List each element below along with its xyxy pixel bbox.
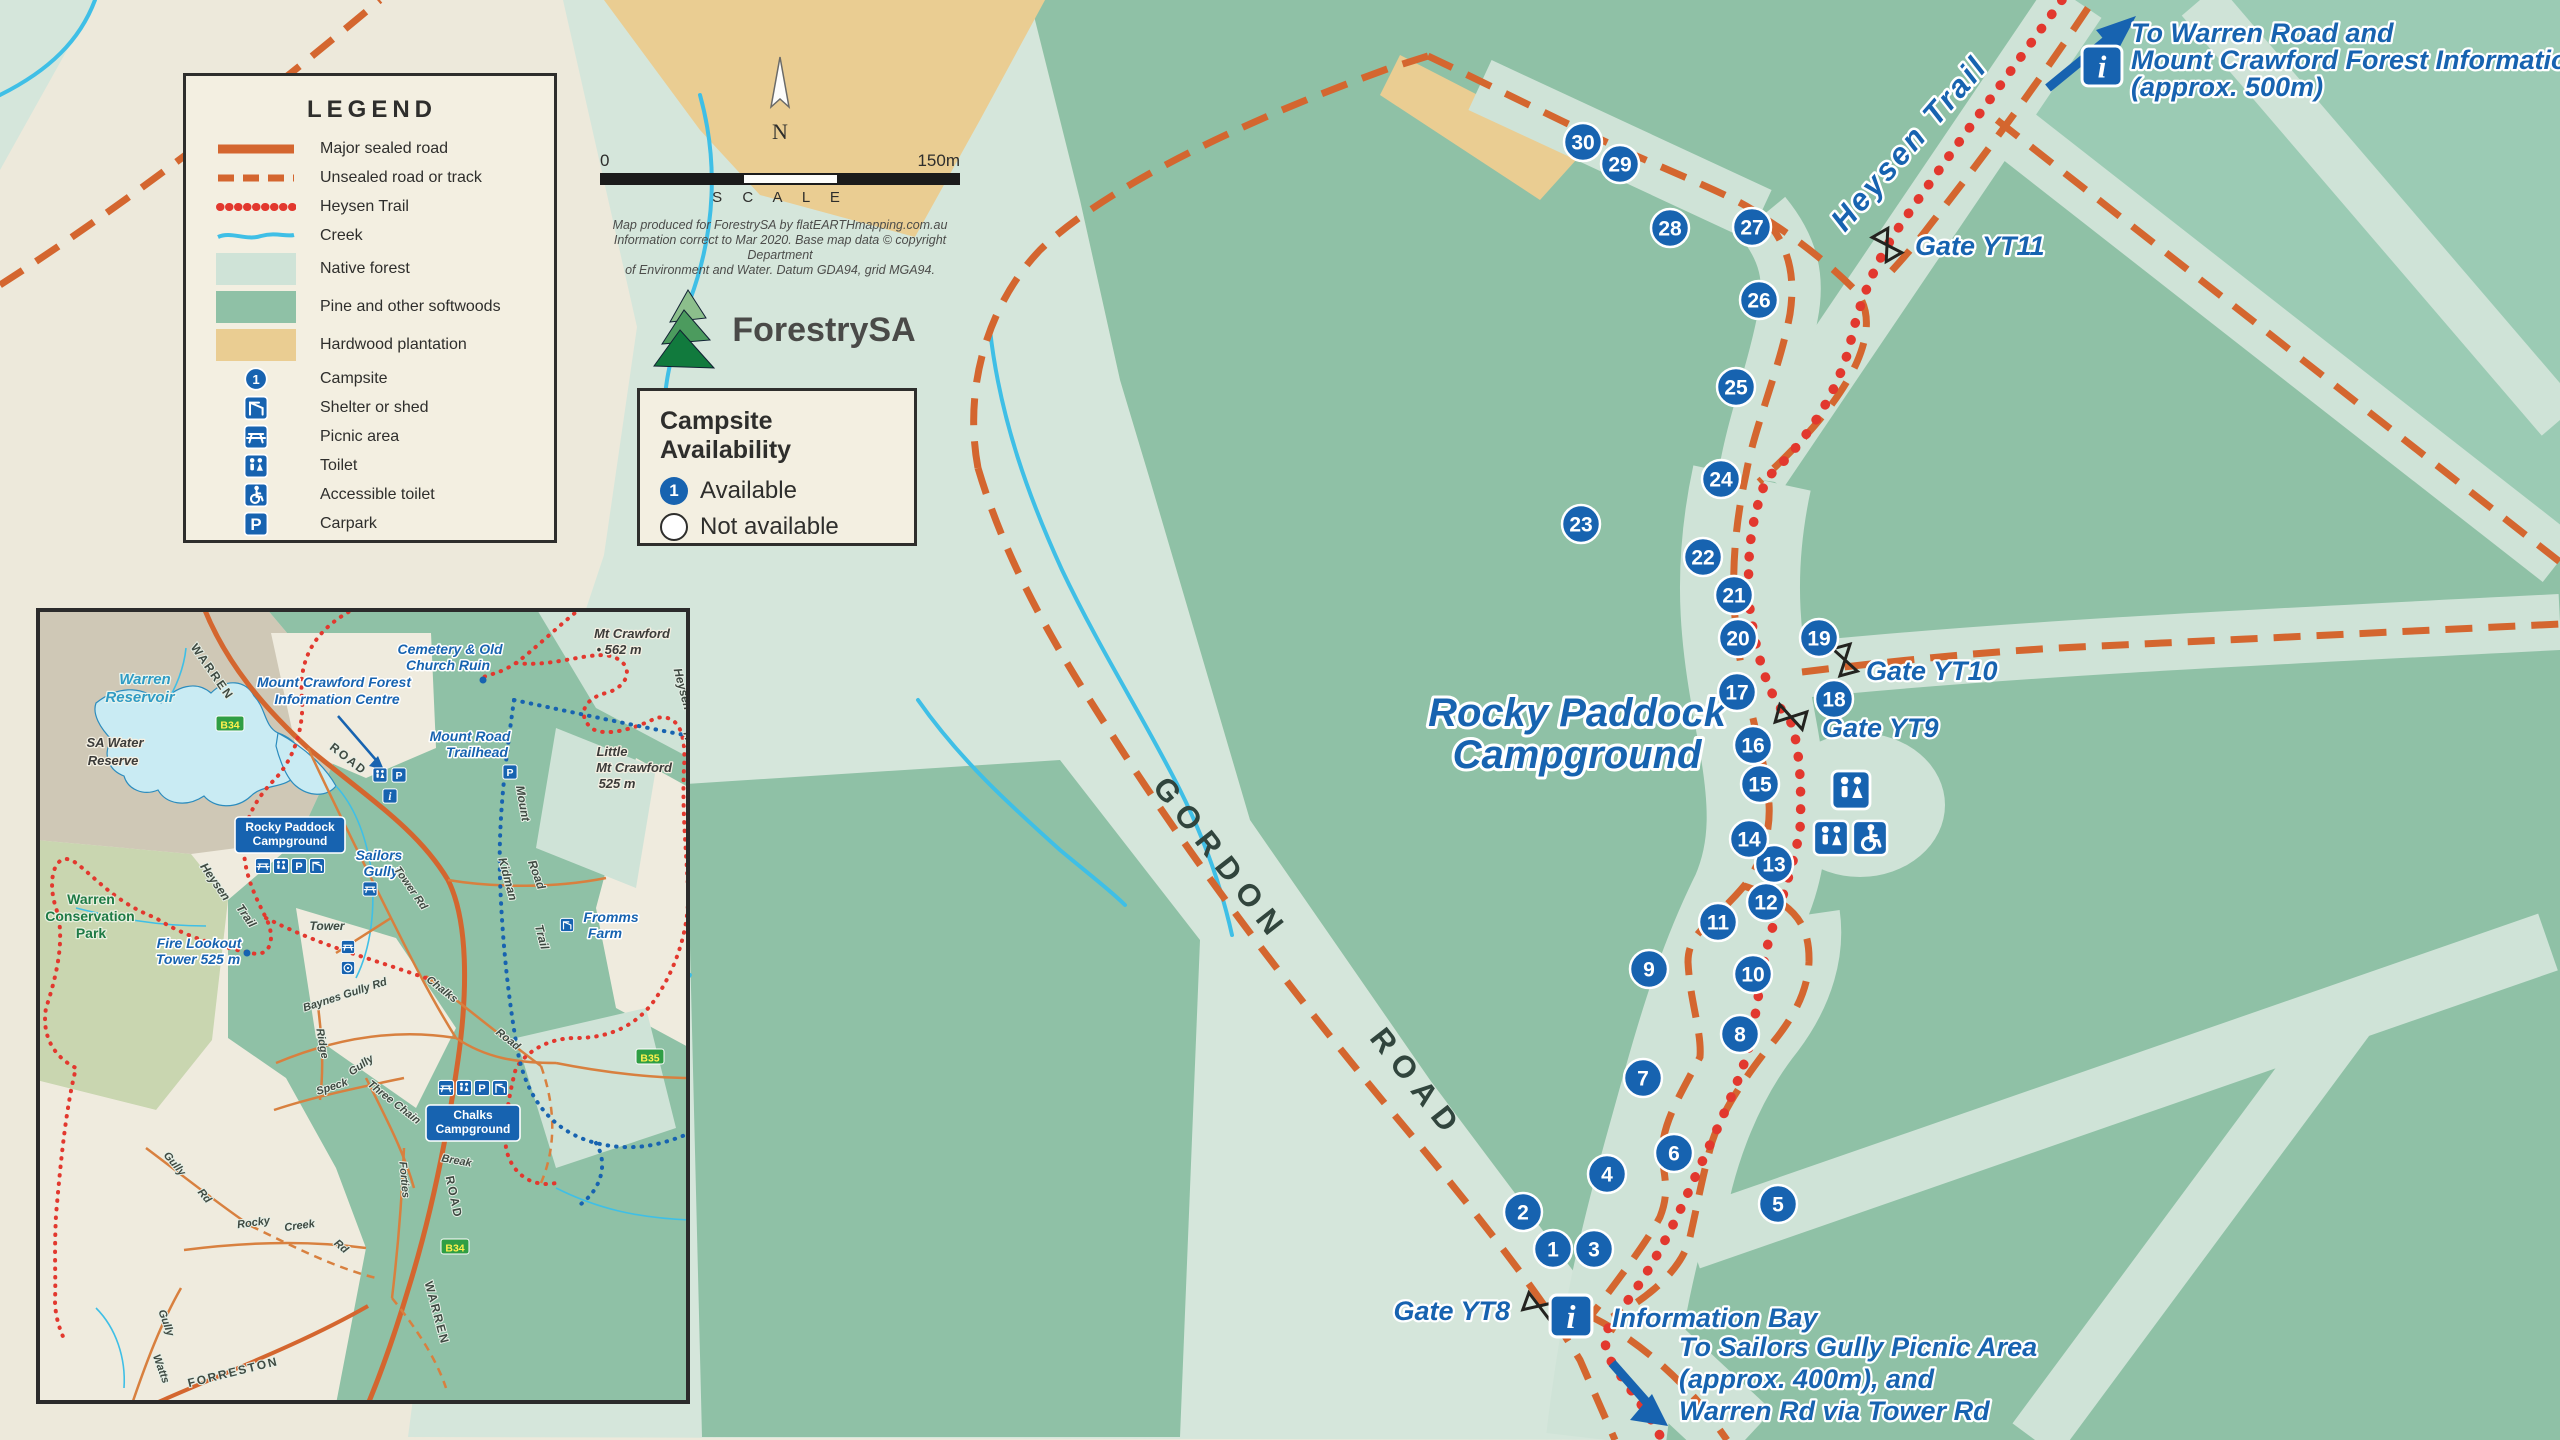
- campsite-marker-16: 16: [1734, 726, 1772, 764]
- campsite-number: 15: [1748, 774, 1772, 797]
- available-marker-icon: 1: [660, 477, 688, 505]
- picnic-icon: [363, 882, 377, 896]
- campsite-number: 7: [1637, 1068, 1649, 1091]
- campsite-number: 28: [1658, 218, 1682, 241]
- inset-label: Tower 525 m: [156, 951, 240, 967]
- scale-cluster: N 0 150m S C A L E Map produced for Fore…: [600, 55, 960, 372]
- inset-label: Conservation: [45, 908, 134, 924]
- inset-label: Reserve: [88, 753, 139, 768]
- info-icon: i: [2082, 46, 2122, 86]
- north-arrow-icon: [762, 55, 798, 119]
- route-badge-B34: B34: [441, 1239, 469, 1255]
- campsite-marker-19: 19: [1800, 619, 1838, 657]
- accessible-icon: [1853, 821, 1887, 855]
- route-badge-text: B35: [640, 1053, 659, 1065]
- legend-row-road-dashed: Unsealed road or track: [216, 163, 528, 192]
- legend-label: Carpark: [320, 515, 377, 533]
- campsite-number: 2: [1517, 1202, 1529, 1225]
- carpark-icon: P: [291, 858, 306, 873]
- map-label: (approx. 500m): [2131, 72, 2323, 102]
- inset-label: Church Ruin: [406, 657, 490, 673]
- campsite-number: 13: [1762, 854, 1785, 877]
- availability-title: Campsite Availability: [660, 407, 894, 465]
- map-label: Rocky Paddock: [1428, 691, 1728, 735]
- legend-label: Unsealed road or track: [320, 169, 482, 187]
- legend-row-native: Native forest: [216, 250, 528, 288]
- carpark-icon: P: [474, 1080, 489, 1095]
- toilet-icon: [456, 1080, 471, 1095]
- legend-label: Campsite: [320, 370, 388, 388]
- toilet-icon: [216, 453, 296, 479]
- scale-word: S C A L E: [600, 189, 960, 206]
- toilet-icon: [273, 858, 288, 873]
- credit-line-3: of Environment and Water. Datum GDA94, g…: [600, 263, 960, 278]
- scale-bar-graphic: [600, 173, 960, 185]
- svg-text:1: 1: [252, 371, 259, 386]
- campsite-number: 5: [1772, 1194, 1784, 1217]
- legend-row-campsite: 1Campsite: [216, 364, 528, 393]
- campsite-number: 9: [1643, 959, 1655, 982]
- campsite-number: 24: [1709, 469, 1733, 492]
- campsite-marker-14: 14: [1730, 820, 1768, 858]
- map-label: Gate YT10: [1866, 656, 1998, 686]
- scale-start: 0: [600, 151, 609, 171]
- svg-text:i: i: [1566, 1300, 1576, 1336]
- campsite-number: 30: [1571, 132, 1594, 155]
- carpark-icon: P: [392, 768, 406, 782]
- legend-row-pine: Pine and other softwoods: [216, 288, 528, 326]
- legend-row-carpark: PCarpark: [216, 509, 528, 538]
- shelter-icon: [492, 1080, 507, 1095]
- carpark-icon: P: [503, 765, 517, 779]
- route-badge-text: B34: [445, 1243, 464, 1255]
- map-credits: Map produced for ForestrySA by flatEARTH…: [600, 218, 960, 278]
- legend-label: Native forest: [320, 260, 410, 278]
- inset-label: • 562 m: [596, 642, 641, 657]
- campsite-number: 4: [1601, 1164, 1613, 1187]
- campsite-marker-28: 28: [1651, 209, 1689, 247]
- north-arrow: N: [600, 55, 960, 145]
- map-label: Gate YT8: [1393, 1296, 1510, 1326]
- availability-panel: Campsite Availability 1 Available Not av…: [637, 388, 917, 546]
- campsite-number: 6: [1668, 1143, 1680, 1166]
- campsite-icon: 1: [245, 368, 267, 390]
- route-badge-B35: B35: [636, 1049, 664, 1065]
- inset-label: Farm: [588, 925, 622, 941]
- campsite-number: 22: [1691, 547, 1714, 570]
- inset-label: Fromms: [583, 909, 638, 925]
- campsite-number: 18: [1822, 689, 1846, 712]
- credit-line-2: Information correct to Mar 2020. Base ma…: [600, 233, 960, 263]
- campsite-marker-11: 11: [1699, 903, 1737, 941]
- svg-text:P: P: [506, 767, 513, 779]
- map-label: Mount Crawford Forest Information Centre: [2131, 45, 2560, 75]
- legend-row-picnic: Picnic area: [216, 422, 528, 451]
- inset-label: Park: [76, 925, 107, 941]
- availability-row-not-available: Not available: [660, 513, 894, 541]
- creek-swatch: [216, 229, 296, 243]
- inset-label: Mount Road: [430, 728, 511, 744]
- route-badge-B34: B34: [216, 716, 244, 732]
- map-label: Warren Rd via Tower Rd: [1679, 1396, 1990, 1426]
- accessible-icon: [245, 483, 268, 506]
- toilet-icon: [245, 454, 268, 477]
- legend-label: Accessible toilet: [320, 486, 435, 504]
- campsite-number: 21: [1722, 585, 1746, 608]
- legend-label: Creek: [320, 227, 363, 245]
- scale-bar: 0 150m S C A L E: [600, 151, 960, 206]
- forestrysa-logo: ForestrySA: [600, 288, 960, 372]
- map-label: Gate YT11: [1915, 231, 2045, 261]
- campsite-marker-22: 22: [1684, 538, 1722, 576]
- map-label: Information Bay: [1612, 1303, 1820, 1333]
- inset-label: 525 m: [599, 776, 636, 791]
- campsite-number: 12: [1754, 892, 1777, 915]
- svg-text:P: P: [295, 861, 303, 873]
- campsite-marker-8: 8: [1721, 1015, 1759, 1053]
- map-label: Campground: [1453, 733, 1703, 777]
- toilet-icon: [1814, 821, 1848, 855]
- not-available-marker-icon: [660, 513, 688, 541]
- inset-label: Trailhead: [446, 744, 508, 760]
- campsite-number: 11: [1707, 912, 1730, 935]
- native-swatch: [216, 253, 296, 285]
- inset-label: Information Centre: [274, 691, 399, 707]
- legend-row-hardwood: Hardwood plantation: [216, 326, 528, 364]
- legend-label: Shelter or shed: [320, 399, 429, 417]
- legend-panel: LEGEND Major sealed roadUnsealed road or…: [183, 73, 557, 543]
- campsite-marker-15: 15: [1741, 765, 1779, 803]
- inset-label: Tower: [310, 919, 346, 933]
- legend-title: LEGEND: [216, 96, 528, 124]
- campsite-marker-21: 21: [1715, 576, 1753, 614]
- campsite-number: 14: [1737, 829, 1761, 852]
- campsite-marker-23: 23: [1562, 505, 1600, 543]
- campsite-number: 19: [1807, 628, 1830, 651]
- inset-label: SA Water: [86, 735, 144, 750]
- campsite-marker-3: 3: [1575, 1230, 1613, 1268]
- campsite-number: 29: [1608, 154, 1631, 177]
- map-page: ii Rocky PaddockCampgroundHeysen TrailGO…: [0, 0, 2560, 1440]
- legend-label: Picnic area: [320, 428, 399, 446]
- accessible-icon: [216, 482, 296, 508]
- campsite-marker-20: 20: [1719, 619, 1757, 657]
- campsite-marker-5: 5: [1759, 1185, 1797, 1223]
- campsite-marker-7: 7: [1624, 1059, 1662, 1097]
- forestrysa-logo-text: ForestrySA: [732, 311, 915, 350]
- inset-label: Little: [596, 744, 627, 759]
- legend-row-creek: Creek: [216, 221, 528, 250]
- campsite-marker-4: 4: [1588, 1155, 1626, 1193]
- legend-line-items: Major sealed roadUnsealed road or trackH…: [216, 134, 528, 250]
- carpark-icon: P: [245, 512, 268, 535]
- legend-label: Hardwood plantation: [320, 336, 467, 354]
- legend-row-trail-dots: Heysen Trail: [216, 192, 528, 221]
- available-label: Available: [700, 477, 797, 505]
- campsite-marker-9: 9: [1630, 950, 1668, 988]
- campsite-number: 26: [1747, 290, 1770, 313]
- campsite-number: 17: [1725, 682, 1748, 705]
- map-label: To Warren Road and: [2131, 18, 2394, 48]
- legend-row-shelter: Shelter or shed: [216, 393, 528, 422]
- inset-locality-map: B34B35B34Rocky PaddockCampgroundPChalksC…: [36, 608, 690, 1404]
- shelter-icon: [309, 858, 324, 873]
- map-label: To Sailors Gully Picnic Area: [1679, 1332, 2037, 1362]
- campsite-marker-24: 24: [1702, 460, 1740, 498]
- inset-label: Cemetery & Old: [397, 641, 502, 657]
- campsite-marker-1: 1: [1534, 1230, 1572, 1268]
- svg-text:P: P: [478, 1083, 486, 1095]
- campsite-marker-6: 6: [1655, 1134, 1693, 1172]
- picnic-icon: [216, 424, 296, 450]
- campsite-marker-18: 18: [1815, 680, 1853, 718]
- scale-end: 150m: [917, 151, 960, 171]
- campsite-marker-2: 2: [1504, 1193, 1542, 1231]
- pine-swatch: [216, 291, 296, 323]
- campsite-number: 1: [1547, 1239, 1559, 1262]
- lookout-icon: [341, 961, 354, 974]
- campsite-number: 25: [1724, 377, 1748, 400]
- inset-label: Warren: [67, 891, 115, 907]
- svg-text:i: i: [2098, 50, 2107, 85]
- campsite-marker-27: 27: [1733, 208, 1771, 246]
- credit-line-1: Map produced for ForestrySA by flatEARTH…: [600, 218, 960, 233]
- inset-label: Mt Crawford: [596, 760, 673, 775]
- forestrysa-tree-icon: [644, 288, 722, 372]
- inset-label: Warren: [119, 671, 170, 688]
- picnic-icon: [341, 940, 354, 953]
- inset-label: Sailors: [356, 847, 403, 863]
- picnic-icon: [245, 425, 268, 448]
- carpark-icon: P: [216, 511, 296, 537]
- campsite-number: 23: [1569, 514, 1592, 537]
- legend-row-accessible: Accessible toilet: [216, 480, 528, 509]
- shelter-icon: [560, 918, 573, 931]
- pine-forest-sw-area: [686, 760, 1200, 1437]
- campsite-number: 16: [1741, 735, 1764, 758]
- legend-label: Heysen Trail: [320, 198, 409, 216]
- campsite-marker-29: 29: [1601, 145, 1639, 183]
- trail-dots-swatch: [216, 201, 296, 213]
- campsite-number: 10: [1741, 964, 1764, 987]
- road-solid-swatch: [216, 143, 296, 155]
- legend-area-items: Native forestPine and other softwoodsHar…: [216, 250, 528, 364]
- inset-label: Mt Crawford: [594, 626, 671, 641]
- campsite-marker-17: 17: [1718, 673, 1756, 711]
- campsite-icon: 1: [216, 366, 296, 392]
- shelter-icon: [216, 395, 296, 421]
- not-available-label: Not available: [700, 513, 839, 541]
- toilet-icon: [1832, 771, 1870, 809]
- inset-label: Fire Lookout: [157, 935, 243, 951]
- campsite-marker-12: 12: [1747, 883, 1785, 921]
- campsite-number: 27: [1740, 217, 1763, 240]
- campsite-marker-26: 26: [1740, 281, 1778, 319]
- legend-label: Pine and other softwoods: [320, 298, 501, 316]
- campsite-number: 20: [1726, 628, 1749, 651]
- inset-label: Reservoir: [105, 689, 175, 706]
- campground-box-text: Chalks: [453, 1108, 493, 1122]
- picnic-icon: [438, 1080, 453, 1095]
- inset-label: Mount Crawford Forest: [257, 674, 412, 690]
- campsite-marker-25: 25: [1717, 368, 1755, 406]
- map-label: (approx. 400m), and: [1679, 1364, 1935, 1394]
- legend-icon-items: 1CampsiteShelter or shedPicnic areaToile…: [216, 364, 528, 538]
- campground-box-text: Campground: [253, 834, 328, 848]
- svg-text:P: P: [395, 770, 402, 782]
- north-label: N: [772, 119, 788, 145]
- svg-text:P: P: [250, 515, 261, 534]
- availability-row-available: 1 Available: [660, 477, 894, 505]
- info-icon: i: [383, 789, 397, 803]
- campsite-marker-30: 30: [1564, 123, 1602, 161]
- legend-label: Major sealed road: [320, 140, 448, 158]
- campsite-number: 3: [1588, 1239, 1600, 1262]
- toilet-icon: [373, 768, 387, 782]
- road-dashed-swatch: [216, 172, 296, 184]
- legend-row-toilet: Toilet: [216, 451, 528, 480]
- picnic-icon: [255, 858, 270, 873]
- campground-box-text: Rocky Paddock: [245, 820, 335, 834]
- campground-box-text: Campground: [436, 1122, 511, 1136]
- shelter-icon: [245, 396, 268, 419]
- legend-label: Toilet: [320, 457, 357, 475]
- route-badge-text: B34: [220, 720, 239, 732]
- legend-row-road-solid: Major sealed road: [216, 134, 528, 163]
- hardwood-swatch: [216, 329, 296, 361]
- info-icon: i: [1550, 1295, 1592, 1337]
- campsite-number: 8: [1734, 1024, 1746, 1047]
- campsite-marker-10: 10: [1734, 955, 1772, 993]
